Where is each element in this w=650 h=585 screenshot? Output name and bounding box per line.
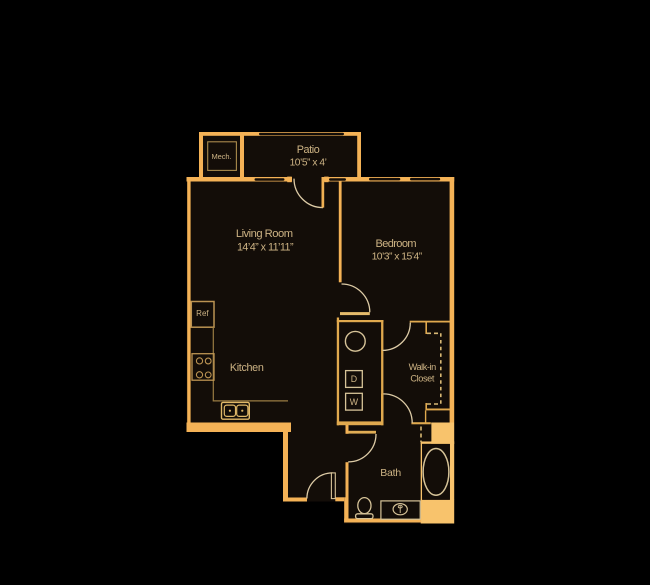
svg-text:Kitchen: Kitchen xyxy=(230,362,264,374)
svg-text:W: W xyxy=(350,397,359,407)
svg-text:14’4” x 11’11”: 14’4” x 11’11” xyxy=(237,241,294,253)
svg-text:Patio: Patio xyxy=(297,144,320,156)
svg-text:10’3” x 15’4”: 10’3” x 15’4” xyxy=(372,251,423,262)
svg-text:Closet: Closet xyxy=(410,374,434,384)
svg-text:D: D xyxy=(351,374,357,384)
svg-text:Ref: Ref xyxy=(196,309,209,318)
svg-text:Bath: Bath xyxy=(380,467,401,479)
svg-text:Mech.: Mech. xyxy=(212,152,232,161)
svg-text:Bedroom: Bedroom xyxy=(375,238,416,250)
svg-text:10’5” x 4’: 10’5” x 4’ xyxy=(290,157,327,168)
svg-text:Walk-in: Walk-in xyxy=(409,362,436,372)
svg-text:Living Room: Living Room xyxy=(236,228,293,240)
